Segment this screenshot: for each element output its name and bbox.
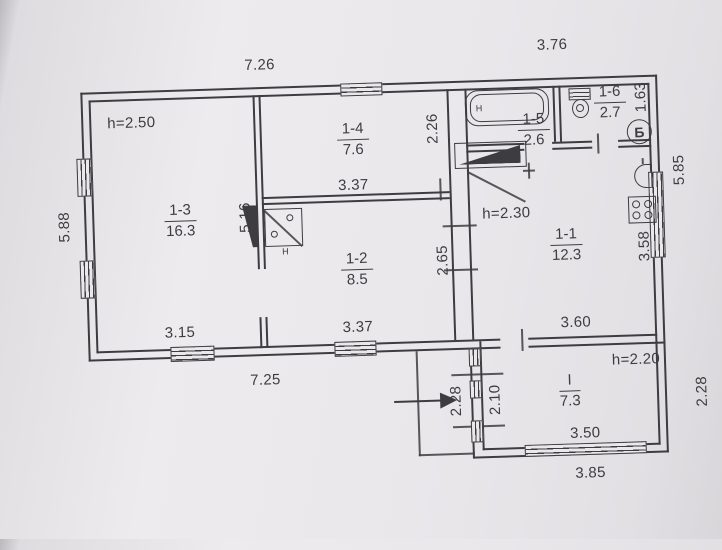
- room-area: 2.6: [518, 130, 550, 150]
- wall-segment: [528, 341, 665, 347]
- wall-segment: [259, 317, 262, 348]
- room-area: 12.3: [550, 245, 582, 265]
- wall-segment: [89, 100, 99, 353]
- window-hatch: [170, 346, 214, 362]
- wall-segment: [464, 89, 474, 340]
- cooker-icon: [628, 196, 657, 224]
- wall-segment: [262, 197, 450, 205]
- dim-bottom-main: 7.25: [250, 371, 281, 389]
- dim-r13-right: 5.16: [236, 202, 254, 233]
- dim-r12-right: 2.65: [434, 245, 452, 276]
- dimension-tick: [521, 329, 523, 351]
- room-label-1-4: 1-4 7.6: [336, 119, 369, 160]
- wall-segment: [528, 334, 657, 340]
- wall-segment: [552, 141, 592, 144]
- dimension-tick: [439, 178, 441, 200]
- height-label-main: h=2.50: [107, 114, 156, 133]
- room-id: 1-6: [593, 82, 625, 103]
- height-label-annex: h=2.20: [612, 350, 661, 369]
- dim-r13-width: 3.15: [164, 324, 195, 342]
- window-hatch: [340, 82, 382, 96]
- floor-plan-photo: H H Б 1-3 16.3 1-4 7.6 1-2 8.5 1-5 2.6 1…: [0, 0, 722, 539]
- dim-r11-width: 3.60: [560, 313, 591, 331]
- dim-r16-right: 1.63: [632, 82, 650, 113]
- dimension-tick: [443, 224, 477, 227]
- dim-annex-inner-left: 2.10: [486, 384, 504, 415]
- floor-plan: H H Б 1-3 16.3 1-4 7.6 1-2 8.5 1-5 2.6 1…: [0, 0, 722, 550]
- room-label-1-3: 1-3 16.3: [164, 200, 197, 241]
- door-handle-mark: [523, 169, 535, 171]
- room-id: 1-3: [164, 200, 196, 221]
- sink-tap-mark: [642, 158, 644, 164]
- room-area: 8.5: [341, 269, 373, 289]
- wall-segment: [265, 317, 268, 348]
- window-hatch: [470, 380, 483, 398]
- room-id: I: [559, 370, 580, 391]
- porch-line: [419, 453, 475, 456]
- dim-left: 5.88: [56, 212, 74, 243]
- room-label-1-5: 1-5 2.6: [517, 109, 550, 150]
- door-swing-line: [468, 172, 526, 203]
- dim-r14-right: 2.26: [424, 113, 442, 144]
- dim-r12-top-width: 3.37: [338, 176, 369, 194]
- dim-annex-left: 2.28: [447, 386, 465, 417]
- dim-bottom-annex: 3.85: [575, 464, 606, 482]
- dimension-tick: [451, 373, 503, 376]
- window-hatch: [469, 348, 482, 366]
- dimension-tick: [597, 133, 599, 153]
- dim-annex-right: 2.28: [693, 376, 711, 407]
- room-id: 1-5: [517, 109, 549, 130]
- dim-r11-right: 3.58: [635, 231, 653, 262]
- dim-top-main: 7.26: [244, 56, 275, 74]
- sink-icon: [634, 164, 653, 189]
- room-area: 16.3: [165, 221, 197, 241]
- room-label-1-6: 1-6 2.7: [593, 82, 626, 123]
- room-id: 1-1: [550, 224, 582, 245]
- wall-segment: [558, 86, 562, 142]
- room-id: 1-4: [336, 119, 368, 140]
- room-label-1-2: 1-2 8.5: [341, 249, 374, 290]
- window-hatch: [80, 260, 96, 298]
- wall-segment: [552, 86, 556, 142]
- stove-tap-mark: H: [282, 246, 289, 256]
- wall-segment: [618, 145, 651, 148]
- room-area: 7.6: [337, 139, 369, 159]
- wall-segment: [96, 339, 500, 354]
- wall-segment: [446, 89, 456, 340]
- height-label-hall: h=2.30: [482, 204, 531, 223]
- room-area: 2.7: [594, 102, 626, 122]
- window-hatch: [471, 420, 484, 442]
- window-hatch: [525, 441, 647, 457]
- dim-r12-width: 3.37: [342, 318, 373, 336]
- bathtub-tap-mark: H: [476, 103, 483, 113]
- room-label-1-1: 1-1 12.3: [550, 224, 583, 265]
- room-area: 7.3: [559, 391, 580, 411]
- dim-right: 5.85: [670, 154, 688, 185]
- window-hatch: [334, 341, 376, 357]
- room-id: 1-2: [341, 249, 373, 270]
- dim-annex-inner-width: 3.50: [570, 424, 601, 442]
- wall-segment: [552, 147, 592, 150]
- dim-top-right: 3.76: [537, 36, 568, 54]
- porch-line: [416, 351, 421, 456]
- room-label-annex: I 7.3: [559, 370, 581, 411]
- window-hatch: [76, 158, 92, 196]
